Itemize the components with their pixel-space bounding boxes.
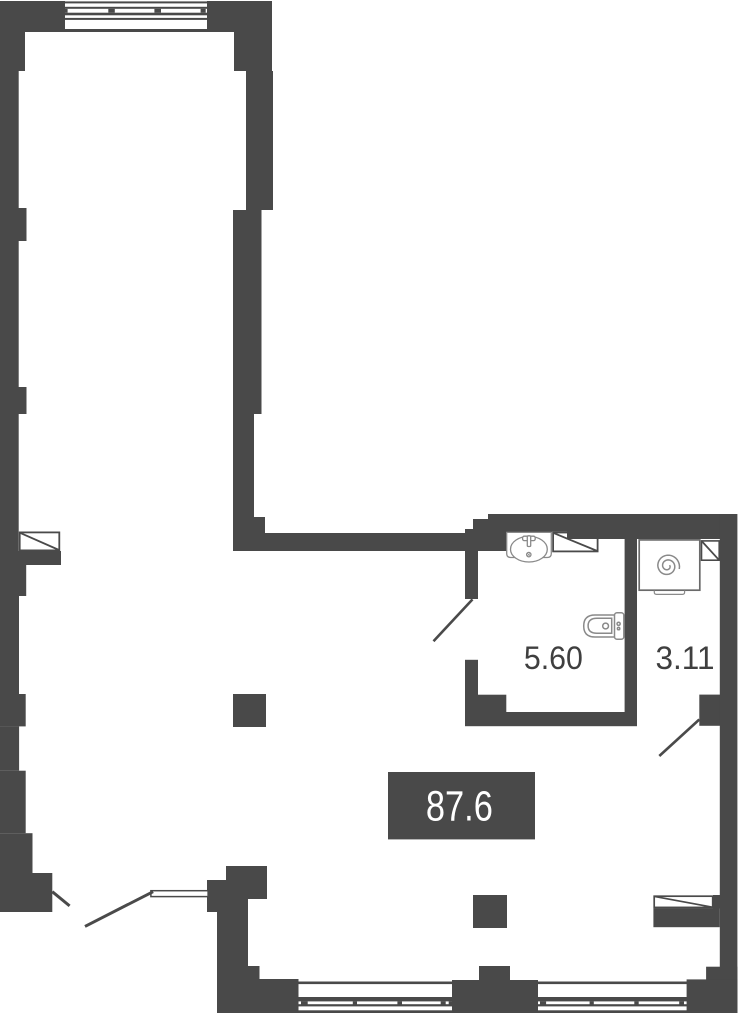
svg-text:3.11: 3.11 <box>656 640 715 676</box>
svg-text:87.6: 87.6 <box>426 784 493 831</box>
svg-text:5.60: 5.60 <box>524 640 583 676</box>
